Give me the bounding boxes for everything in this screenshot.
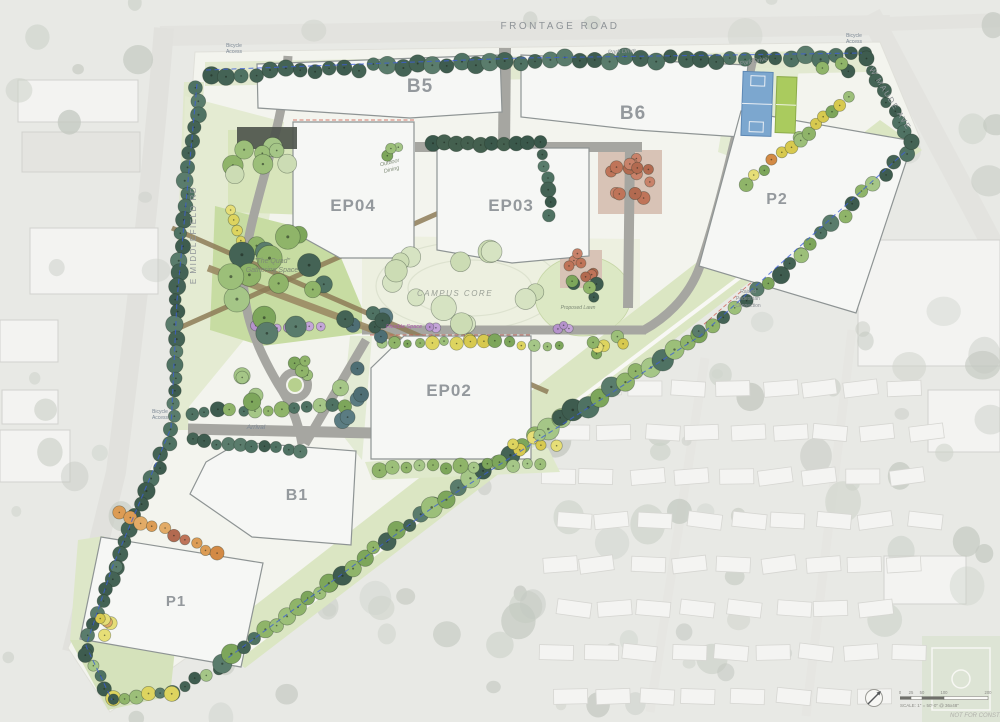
context-building bbox=[0, 320, 58, 362]
arrival-label: Arrival bbox=[246, 424, 266, 431]
bicycle-access-label-2b: Access bbox=[152, 415, 169, 421]
proposed-lawn-label: Proposed Lawn bbox=[561, 305, 596, 311]
road-label-middlefield: E MIDDLEFIELD RD bbox=[189, 186, 198, 284]
recreation-courts bbox=[741, 71, 797, 137]
not-for-construction-stamp: NOT FOR CONSTRUCTION bbox=[950, 713, 1000, 719]
scale-tick-50: 50 bbox=[920, 690, 925, 695]
raised-ped-label-line3: Connection bbox=[735, 303, 761, 309]
building-ep03-label: EP03 bbox=[488, 196, 534, 215]
raised-ped-label-line1: Raised bbox=[740, 289, 756, 295]
raised-ped-label-line2: Pedestrian bbox=[736, 296, 760, 302]
building-p1-label: P1 bbox=[166, 593, 186, 610]
scale-note: SCALE: 1" = 50'-0" @ 36x48" bbox=[900, 703, 959, 708]
bicycle-access-label-3b: Access bbox=[846, 39, 863, 45]
campus-core-label: CAMPUS CORE bbox=[417, 289, 493, 298]
building-b1-label: B1 bbox=[286, 487, 308, 504]
building-b6-label: B6 bbox=[620, 103, 646, 124]
scale-tick-0: 0 bbox=[899, 690, 902, 695]
site-plan-drawing: FRONTAGE ROAD E MIDDLEFIELD RD W MAUDE A… bbox=[0, 0, 1000, 722]
scale-tick-25: 25 bbox=[909, 690, 914, 695]
building-ep02-label: EP02 bbox=[426, 381, 472, 400]
context-sports-field bbox=[922, 636, 1000, 722]
roundabout-center bbox=[288, 378, 302, 392]
quad-label-line2: Gathering Space bbox=[246, 267, 299, 274]
road-label-frontage: FRONTAGE ROAD bbox=[501, 21, 620, 32]
flexible-space-label: Flexible Space bbox=[386, 324, 422, 330]
building-b5-label: B5 bbox=[407, 76, 433, 97]
building-p2-label: P2 bbox=[766, 191, 788, 208]
scale-tick-200: 200 bbox=[985, 690, 993, 695]
context-parking-lot bbox=[22, 132, 140, 172]
building-ep04-label: EP04 bbox=[330, 196, 376, 215]
bicycle-access-label-1b: Access bbox=[226, 49, 243, 55]
quad-label-line1: "The Quad" bbox=[254, 258, 291, 265]
building-ep04-footprint bbox=[293, 122, 414, 258]
site-plan-canvas: FRONTAGE ROAD E MIDDLEFIELD RD W MAUDE A… bbox=[0, 0, 1000, 722]
context-building bbox=[30, 228, 158, 294]
scale-tick-100: 100 bbox=[941, 690, 949, 695]
